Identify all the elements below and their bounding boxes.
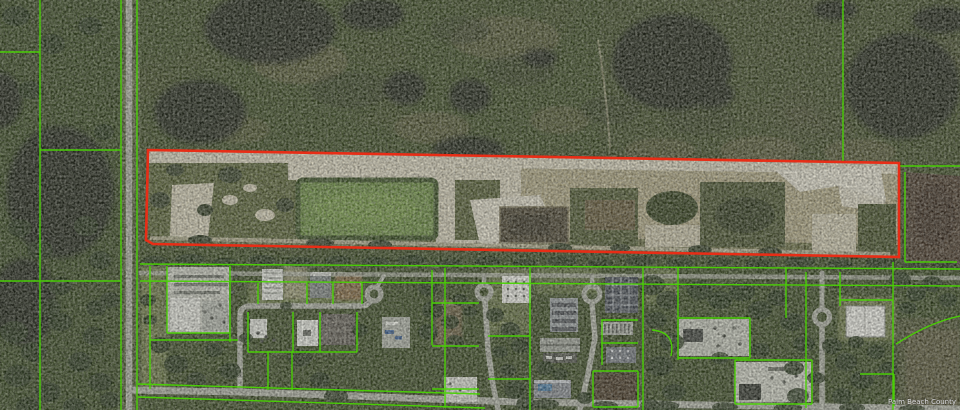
noise-overlay-light bbox=[0, 0, 960, 410]
county-watermark: Palm Beach County bbox=[888, 398, 956, 406]
aerial-map[interactable]: Palm Beach County bbox=[0, 0, 960, 410]
aerial-map-canvas[interactable]: Palm Beach County bbox=[0, 0, 960, 410]
